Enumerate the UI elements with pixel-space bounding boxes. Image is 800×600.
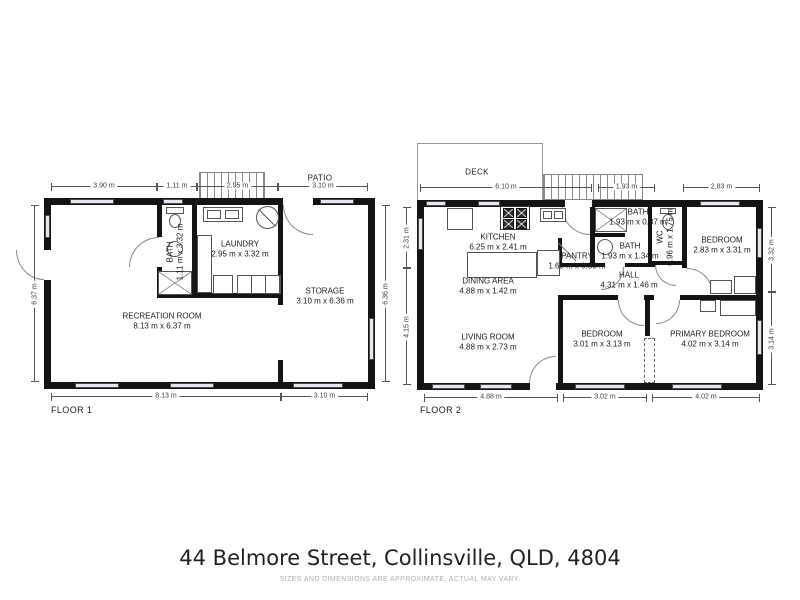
room-dims: 3.01 m x 3.13 m — [573, 340, 630, 350]
dimension: 3.10 m — [278, 186, 368, 187]
room-name: PANTRY — [548, 252, 605, 262]
room-dims: 1.63 m x 0.83 m — [548, 262, 605, 272]
dimension: 3.10 m — [281, 396, 368, 397]
room-dims: 3.10 m x 6.36 m — [296, 297, 353, 307]
dimension: 2.83 m — [683, 187, 760, 188]
toilet-icon — [166, 207, 184, 214]
wall — [558, 295, 618, 300]
dimension: 3.02 m — [563, 397, 647, 398]
room-name: KITCHEN — [469, 233, 526, 243]
furniture — [734, 276, 756, 294]
wall — [682, 207, 687, 268]
dimension: 1.93 m — [598, 187, 655, 188]
dimension: 6.36 m — [385, 205, 386, 382]
window — [478, 201, 500, 206]
window — [418, 218, 423, 250]
door-gap — [44, 250, 51, 280]
room-dims: 1.93 m x 1.34 m — [601, 252, 658, 262]
room-dims: 4.02 m x 3.14 m — [670, 340, 750, 350]
sink-bowl — [543, 211, 552, 219]
room-label-bedroom-top: BEDROOM 2.83 m x 3.31 m — [693, 236, 750, 257]
window — [170, 383, 214, 388]
window — [75, 383, 119, 388]
door-gap — [565, 200, 592, 207]
burner-icon — [516, 219, 527, 229]
door-arc — [529, 356, 556, 383]
dimension: 2.31 m — [406, 207, 407, 268]
wall — [278, 360, 283, 382]
dimension: 8.13 m — [51, 396, 281, 397]
room-label-bath: BATH 1.11 m x 3.32 m — [166, 224, 187, 281]
door-gap — [283, 198, 313, 205]
cabinet — [213, 275, 233, 294]
room-label-living: LIVING ROOM 4.88 m x 2.73 m — [459, 333, 516, 354]
room-dims: 4.31 m x 1.46 m — [600, 281, 657, 291]
dimension: 3.32 m — [771, 207, 772, 292]
sink-bowl — [207, 210, 221, 219]
dimension: 4.02 m — [652, 397, 760, 398]
address-title: 44 Belmore Street, Collinsville, QLD, 48… — [0, 546, 800, 570]
window — [45, 215, 50, 238]
room-dims: 4.88 m x 1.42 m — [459, 287, 516, 297]
sink-bowl — [554, 211, 563, 219]
window — [293, 383, 343, 388]
room-label-recreation: RECREATION ROOM 8.13 m x 6.37 m — [123, 312, 202, 333]
window — [426, 201, 446, 206]
door-arc — [656, 300, 680, 324]
room-name: BEDROOM — [573, 330, 630, 340]
window — [70, 199, 114, 204]
room-name: PRIMARY BEDROOM — [670, 330, 750, 340]
dimension: 2.95 m — [197, 186, 278, 187]
disclaimer-text: SIZES AND DIMENSIONS ARE APPROXIMATE, AC… — [0, 576, 800, 583]
window — [700, 201, 740, 206]
wall — [368, 198, 375, 389]
wall — [645, 300, 650, 336]
window — [320, 199, 354, 204]
island-counter — [467, 252, 537, 278]
room-label-pantry: PANTRY 1.63 m x 0.83 m — [548, 252, 605, 273]
window — [575, 384, 625, 389]
dimension: 3.14 m — [771, 292, 772, 385]
furniture — [700, 300, 716, 312]
window — [672, 384, 722, 389]
dimension: 3.90 m — [51, 186, 157, 187]
kitchen-sink-icon — [540, 208, 566, 222]
room-dims: 6.25 m x 2.41 m — [469, 243, 526, 253]
floor1-label: FLOOR 1 — [51, 405, 92, 415]
door-arc — [655, 265, 676, 286]
room-name: HALL — [600, 271, 657, 281]
room-dims: 1.11 m x 3.32 m — [176, 224, 186, 281]
furniture — [720, 300, 756, 316]
room-label-hall: HALL 4.31 m x 1.46 m — [600, 271, 657, 292]
wardrobe — [644, 338, 655, 383]
deck-label: DECK — [465, 168, 489, 177]
burner-icon — [516, 208, 527, 218]
wall — [558, 300, 563, 383]
laundry-sink-icon — [203, 207, 243, 222]
room-dims: 4.88 m x 2.73 m — [459, 343, 516, 353]
room-dims: 2.83 m x 3.31 m — [693, 246, 750, 256]
stove-icon — [500, 206, 530, 230]
room-dims: 0.96 m x 1.75 m — [666, 208, 676, 265]
room-dims: 8.13 m x 6.37 m — [123, 322, 202, 332]
door-arc — [618, 300, 644, 326]
room-name: RECREATION ROOM — [123, 312, 202, 322]
room-label-storage: STORAGE 3.10 m x 6.36 m — [296, 287, 353, 308]
door-arc — [129, 237, 159, 267]
furniture — [710, 280, 732, 294]
room-label-laundry: LAUNDRY 2.95 m x 3.32 m — [211, 240, 268, 261]
fridge-icon — [447, 208, 473, 230]
dimension: 6.10 m — [420, 187, 592, 188]
burner-icon — [503, 219, 514, 229]
floorplan-page: PATIO — [0, 0, 800, 600]
dimension: 4.88 m — [424, 397, 558, 398]
room-name: STORAGE — [296, 287, 353, 297]
window — [757, 320, 762, 355]
window — [369, 318, 374, 360]
window — [432, 384, 465, 389]
washing-machine-icon — [256, 206, 279, 229]
window — [757, 228, 762, 258]
door-arc — [283, 205, 313, 235]
sink-bowl — [225, 210, 239, 219]
room-label-bath-mid: BATH 1.93 m x 1.34 m — [601, 242, 658, 263]
window — [163, 199, 183, 204]
dimension: 1.11 m — [157, 186, 197, 187]
dimension: 6.37 m — [34, 205, 35, 382]
floor2-label: FLOOR 2 — [420, 405, 461, 415]
room-name: BEDROOM — [693, 236, 750, 246]
room-name: WC — [656, 208, 666, 265]
room-label-kitchen: KITCHEN 6.25 m x 2.41 m — [469, 233, 526, 254]
room-name: LIVING ROOM — [459, 333, 516, 343]
wall — [590, 233, 625, 237]
patio-label: PATIO — [308, 174, 333, 183]
room-dims: 2.95 m x 3.32 m — [211, 250, 268, 260]
window — [480, 384, 512, 389]
door-arc — [16, 250, 44, 280]
cabinet-row — [237, 275, 281, 294]
counter — [197, 235, 212, 293]
door-arc — [562, 207, 590, 235]
room-name: DINING AREA — [459, 277, 516, 287]
room-label-wc: WC 0.96 m x 1.75 m — [656, 208, 677, 265]
room-name: BATH — [601, 242, 658, 252]
wall — [157, 205, 162, 237]
room-name: LAUNDRY — [211, 240, 268, 250]
room-label-bedroom-mid: BEDROOM 3.01 m x 3.13 m — [573, 330, 630, 351]
burner-icon — [503, 208, 514, 218]
room-label-primary: PRIMARY BEDROOM 4.02 m x 3.14 m — [670, 330, 750, 351]
room-label-dining: DINING AREA 4.88 m x 1.42 m — [459, 277, 516, 298]
room-name: BATH — [166, 224, 176, 281]
dimension: 4.15 m — [406, 268, 407, 385]
door-gap — [530, 383, 556, 390]
